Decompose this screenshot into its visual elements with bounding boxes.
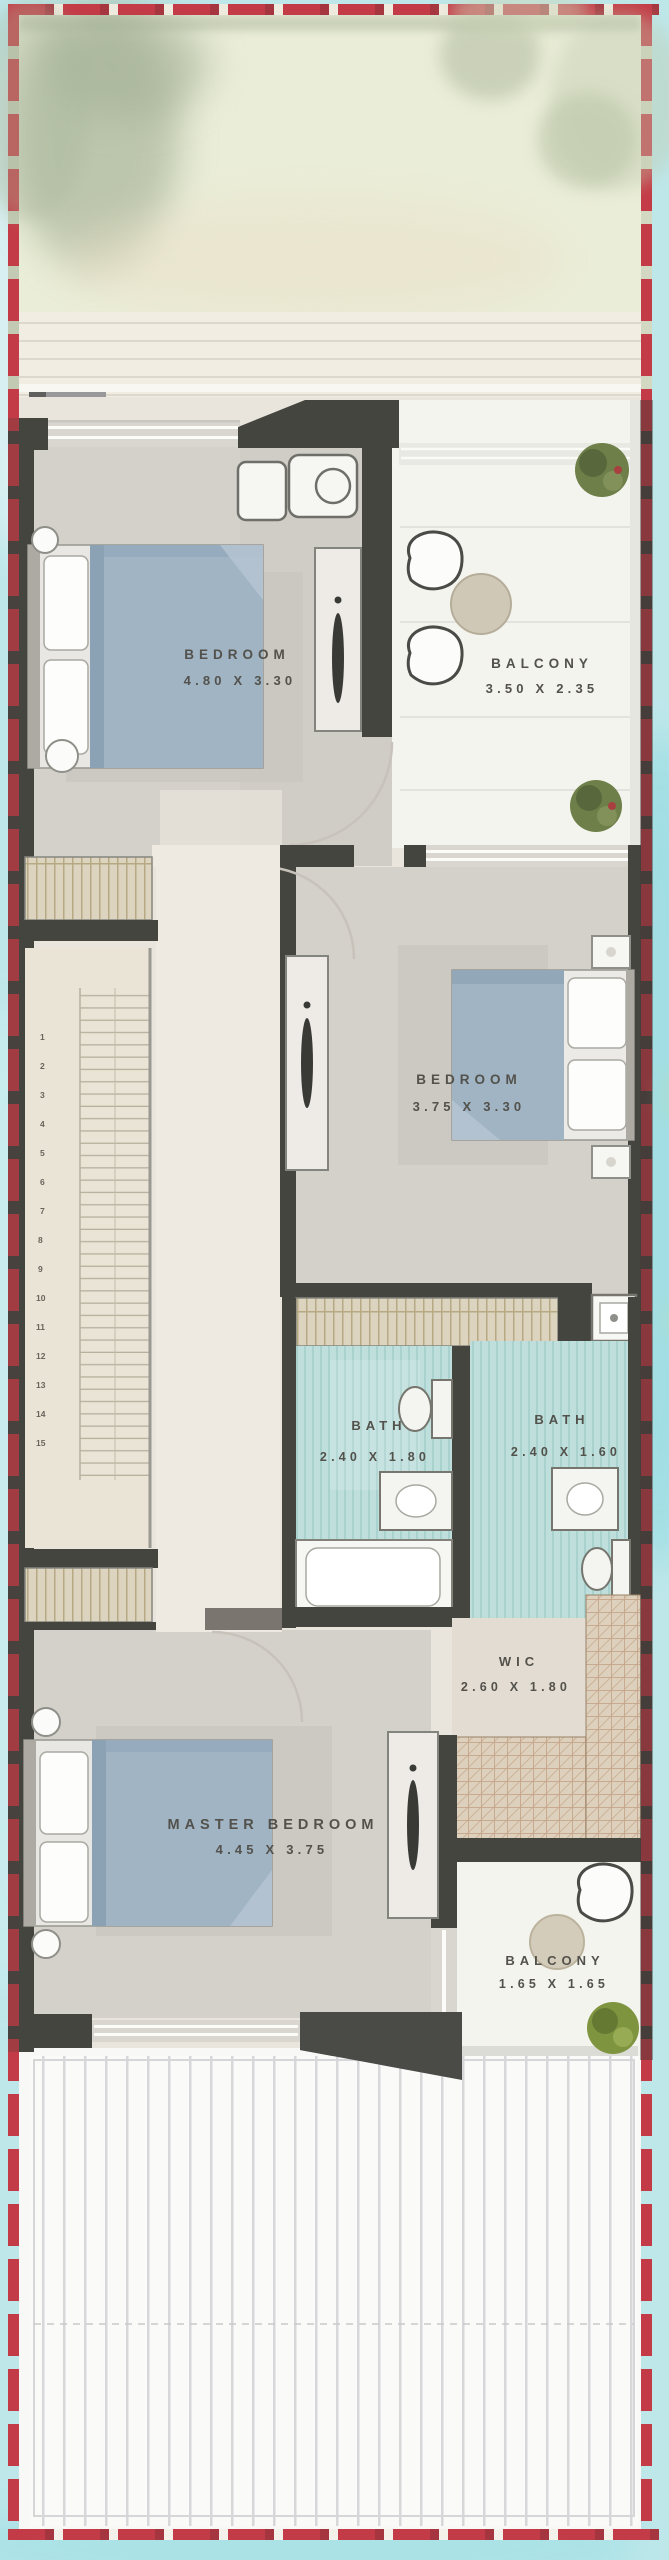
svg-text:2.60 X 1.80: 2.60 X 1.80: [461, 1680, 571, 1694]
svg-text:3: 3: [40, 1090, 45, 1100]
svg-text:12: 12: [36, 1351, 46, 1361]
svg-text:BALCONY: BALCONY: [491, 656, 593, 671]
svg-text:2.40 X 1.80: 2.40 X 1.80: [320, 1450, 430, 1464]
svg-text:3.75 X 3.30: 3.75 X 3.30: [413, 1099, 526, 1114]
svg-text:10: 10: [36, 1293, 46, 1303]
svg-text:1.65 X 1.65: 1.65 X 1.65: [499, 1977, 609, 1991]
svg-text:15: 15: [36, 1438, 46, 1448]
svg-text:6: 6: [40, 1177, 45, 1187]
svg-text:3.50 X 2.35: 3.50 X 2.35: [486, 681, 599, 696]
svg-text:14: 14: [36, 1409, 46, 1419]
svg-text:BATH: BATH: [351, 1418, 406, 1433]
svg-text:4.45 X 3.75: 4.45 X 3.75: [216, 1842, 329, 1857]
svg-text:4: 4: [40, 1119, 45, 1129]
svg-text:1: 1: [40, 1032, 45, 1042]
svg-text:WIC: WIC: [499, 1654, 539, 1669]
svg-text:MASTER BEDROOM: MASTER BEDROOM: [168, 1817, 379, 1833]
svg-text:11: 11: [36, 1322, 45, 1332]
svg-text:4.80 X 3.30: 4.80 X 3.30: [184, 673, 297, 688]
svg-text:BEDROOM: BEDROOM: [416, 1072, 522, 1087]
svg-text:2.40 X 1.60: 2.40 X 1.60: [511, 1445, 621, 1459]
svg-text:7: 7: [40, 1206, 45, 1216]
svg-text:BATH: BATH: [534, 1412, 589, 1427]
svg-text:8: 8: [38, 1235, 43, 1245]
svg-text:2: 2: [40, 1061, 45, 1071]
svg-text:9: 9: [38, 1264, 43, 1274]
svg-text:13: 13: [36, 1380, 46, 1390]
svg-text:BEDROOM: BEDROOM: [184, 647, 290, 662]
svg-text:BALCONY: BALCONY: [505, 1953, 604, 1968]
svg-text:5: 5: [40, 1148, 45, 1158]
